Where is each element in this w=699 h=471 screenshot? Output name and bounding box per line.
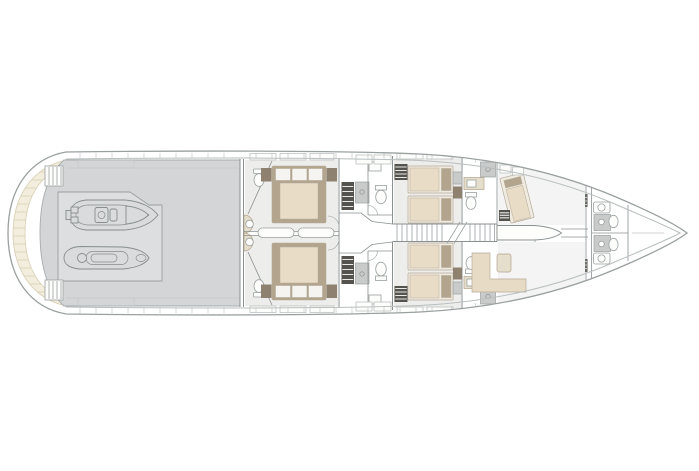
toilet [466,197,476,210]
mess-table [497,254,511,272]
joinery-slab [298,228,334,238]
toilet [376,190,387,204]
nightstand [327,168,338,182]
toilet [609,215,618,227]
wardrobe [395,164,408,180]
pillow [276,169,291,181]
jet-ski-handlebar [78,254,87,263]
stern-steps-starboard [45,280,63,300]
stern-steps-port [45,166,63,186]
jet-ski [64,247,149,270]
yacht-deck-plan-canvas [0,0,699,466]
locker [499,210,510,221]
pillow [292,169,307,181]
tender-garage [40,160,240,306]
tender-console [95,208,108,223]
tender-seat [110,209,117,221]
tender [66,200,158,230]
yacht-lower-deck-plan [0,0,699,466]
duvet [280,183,318,219]
guest-cabin-double-port [244,160,338,233]
nightstand [261,168,272,182]
shower [356,182,370,203]
pillow [309,169,323,181]
shower [481,162,496,177]
pillow [442,169,452,191]
joinery-slab [258,228,294,238]
nightstand [453,187,462,199]
outboard-engine [66,211,71,220]
pillow [442,199,452,221]
wardrobe [342,182,355,210]
basin [246,220,254,228]
